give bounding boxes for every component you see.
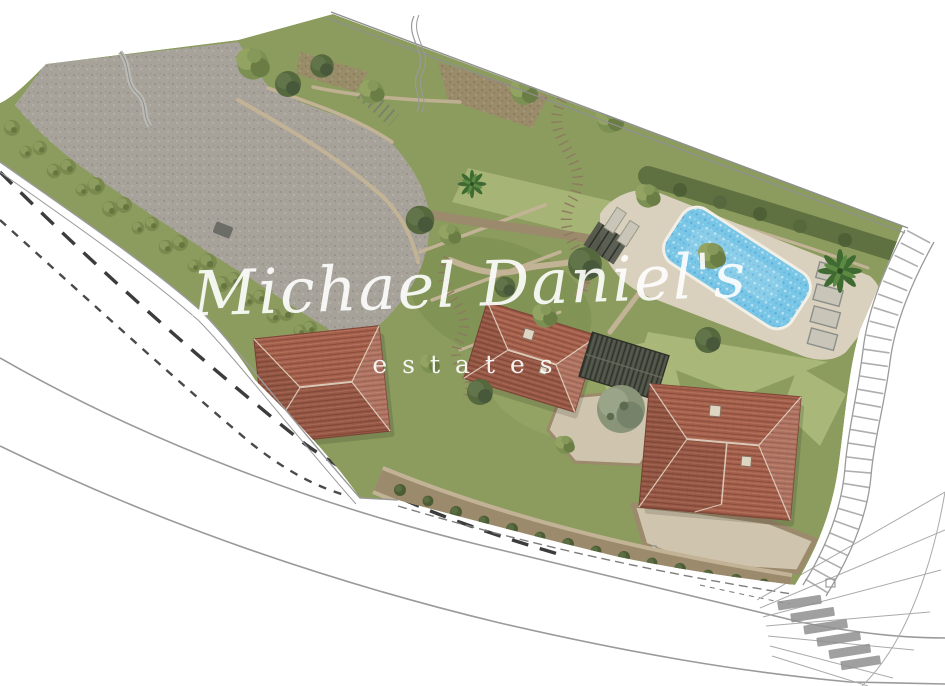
agave-plant	[458, 170, 487, 199]
palm-tree	[818, 249, 862, 293]
chimney	[522, 328, 534, 340]
house-main	[638, 384, 805, 527]
site-plan-image: Michael Daniel's estates	[0, 0, 945, 686]
house-west	[254, 325, 395, 450]
site-plan-svg	[0, 0, 945, 686]
chimney	[709, 405, 721, 417]
